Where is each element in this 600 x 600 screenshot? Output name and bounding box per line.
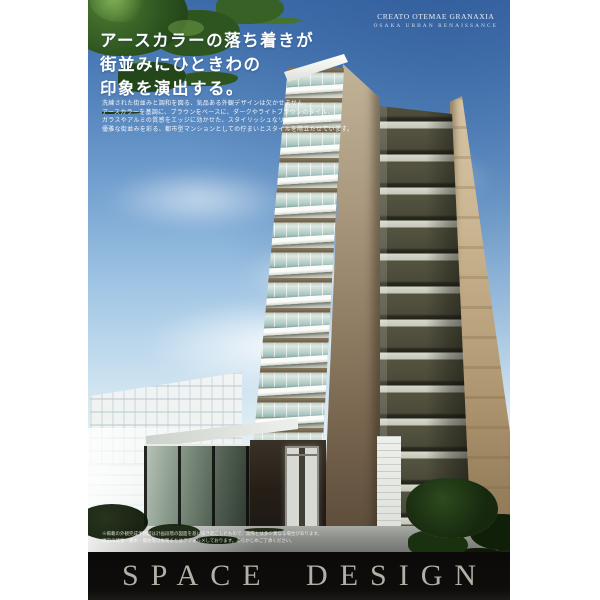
body-copy-line-1: 洗練された街並みと調和を図る、気品ある外観デザインは欠かせません。: [102, 100, 382, 109]
brand-logo: CREATO OTEMAE GRANAXIA OSAKA URBAN RENAI…: [373, 12, 498, 29]
disclaimer-line-2: 周辺の建物・樹木・電柱等は省略またはデフォルメしております。あらかじめご了承くだ…: [102, 538, 432, 545]
headline: アースカラーの落ち着きが 街並みにひときわの 印象を演出する。: [100, 29, 314, 101]
body-copy-line-4: 優雅な街並みを彩る、都市型マンションとしての佇まいとスタイルを際立たせています。: [102, 126, 382, 135]
footer-title: SPACE DESIGN: [122, 559, 488, 593]
body-copy: 洗練された街並みと調和を図る、気品ある外観デザインは欠かせません。 アースカラー…: [102, 100, 382, 134]
brochure-page: CREATO OTEMAE GRANAXIA OSAKA URBAN RENAI…: [0, 0, 600, 600]
foliage-bottom-left: [88, 500, 306, 560]
door-transom: [287, 454, 317, 456]
cloud: [103, 168, 293, 230]
headline-line-2: 街並みにひときわの: [100, 53, 314, 77]
building-rendering-photo: CREATO OTEMAE GRANAXIA OSAKA URBAN RENAI…: [88, 0, 510, 600]
body-copy-line-2: アースカラーを基調に、ブラウンをベースに、ダークやライトブラウンのタイル、: [102, 109, 382, 118]
disclaimer-caption: ※掲載の外観完成予想図は計画段階の図面を基に描き起こしたもので、実際とは多少異な…: [102, 531, 432, 544]
headline-line-1: アースカラーの落ち着きが: [100, 29, 314, 53]
brand-tagline: OSAKA URBAN RENAISSANCE: [373, 23, 498, 29]
footer-band: SPACE DESIGN: [88, 552, 510, 600]
foliage-blob: [406, 478, 498, 538]
brand-name: CREATO OTEMAE GRANAXIA: [373, 12, 498, 21]
headline-line-3: 印象を演出する。: [100, 77, 314, 101]
body-copy-line-3: ガラスやアルミの質感をエッジに効かせた、スタイリッシュなリジッドラインで、: [102, 117, 382, 126]
